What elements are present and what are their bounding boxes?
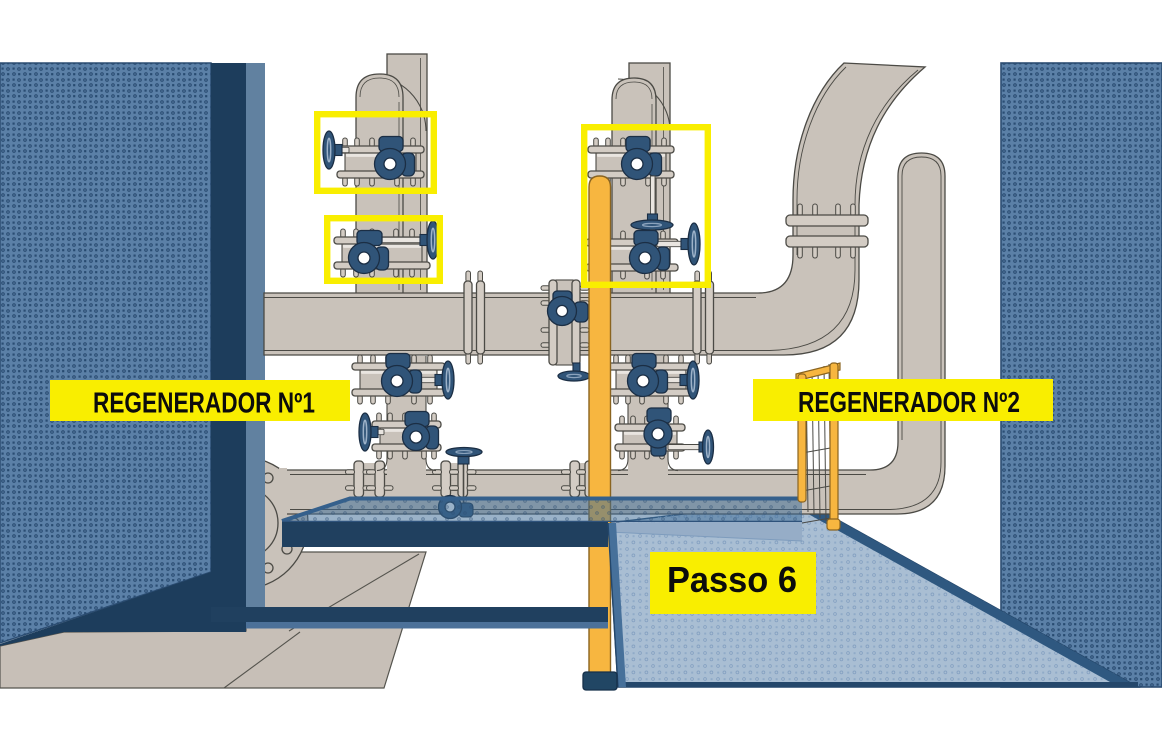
svg-text:REGENERADOR Nº2: REGENERADOR Nº2	[798, 387, 1020, 419]
svg-text:REGENERADOR Nº1: REGENERADOR Nº1	[93, 387, 315, 419]
svg-text:Passo 6: Passo 6	[667, 559, 797, 600]
